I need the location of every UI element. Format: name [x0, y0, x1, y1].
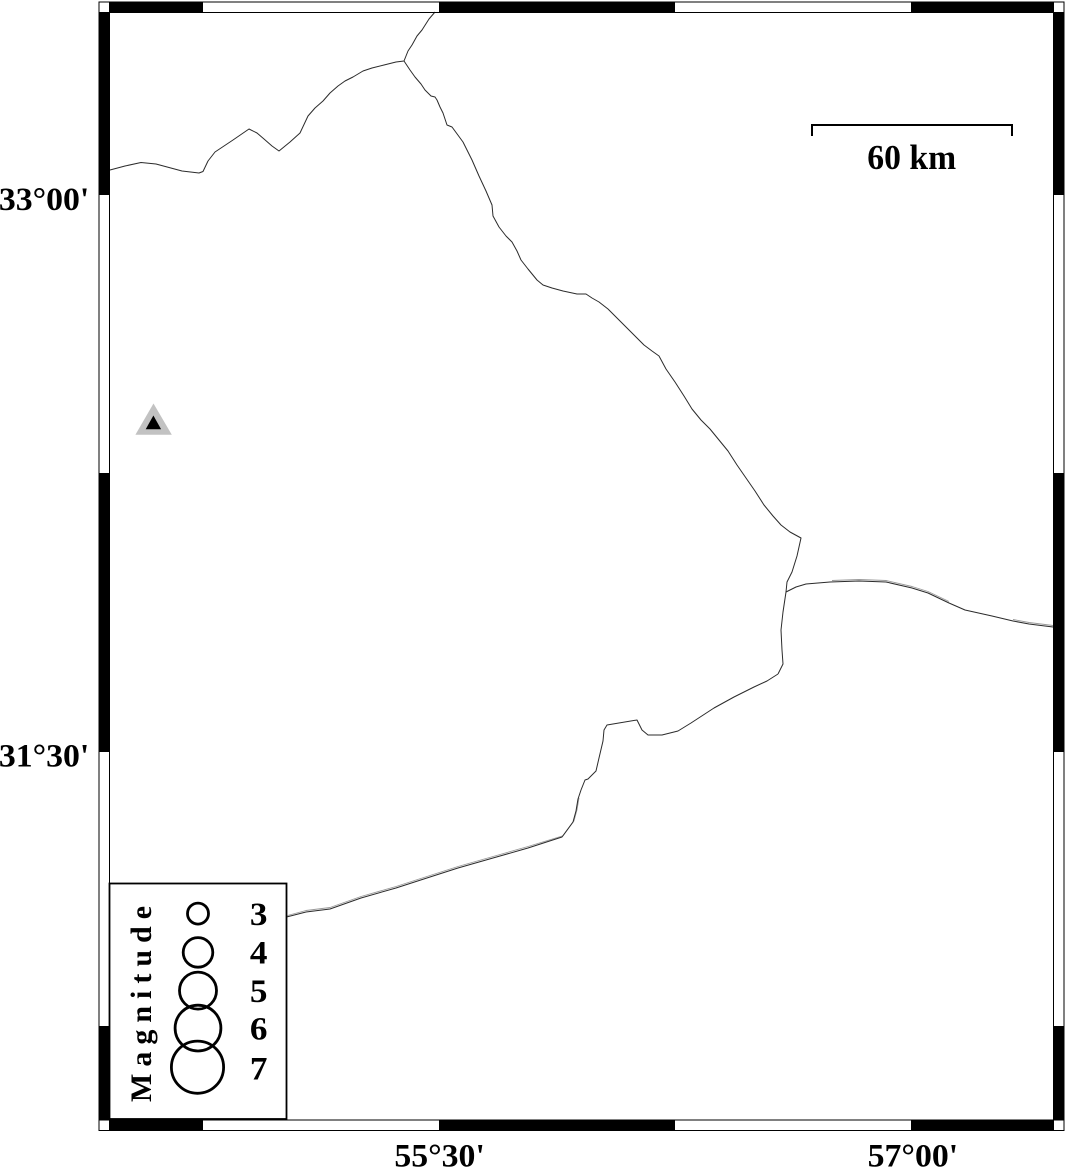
- svg-text:31°30': 31°30': [0, 738, 89, 774]
- svg-text:3: 3: [250, 896, 268, 932]
- svg-text:Magnitude: Magnitude: [125, 899, 158, 1102]
- svg-text:60 km: 60 km: [867, 138, 956, 177]
- svg-text:5: 5: [250, 973, 268, 1009]
- svg-text:6: 6: [250, 1010, 268, 1046]
- svg-text:57°00': 57°00': [868, 1137, 959, 1169]
- svg-text:55°30': 55°30': [394, 1137, 485, 1169]
- svg-text:7: 7: [250, 1050, 268, 1086]
- svg-text:4: 4: [250, 935, 268, 971]
- svg-text:33°00': 33°00': [0, 181, 89, 217]
